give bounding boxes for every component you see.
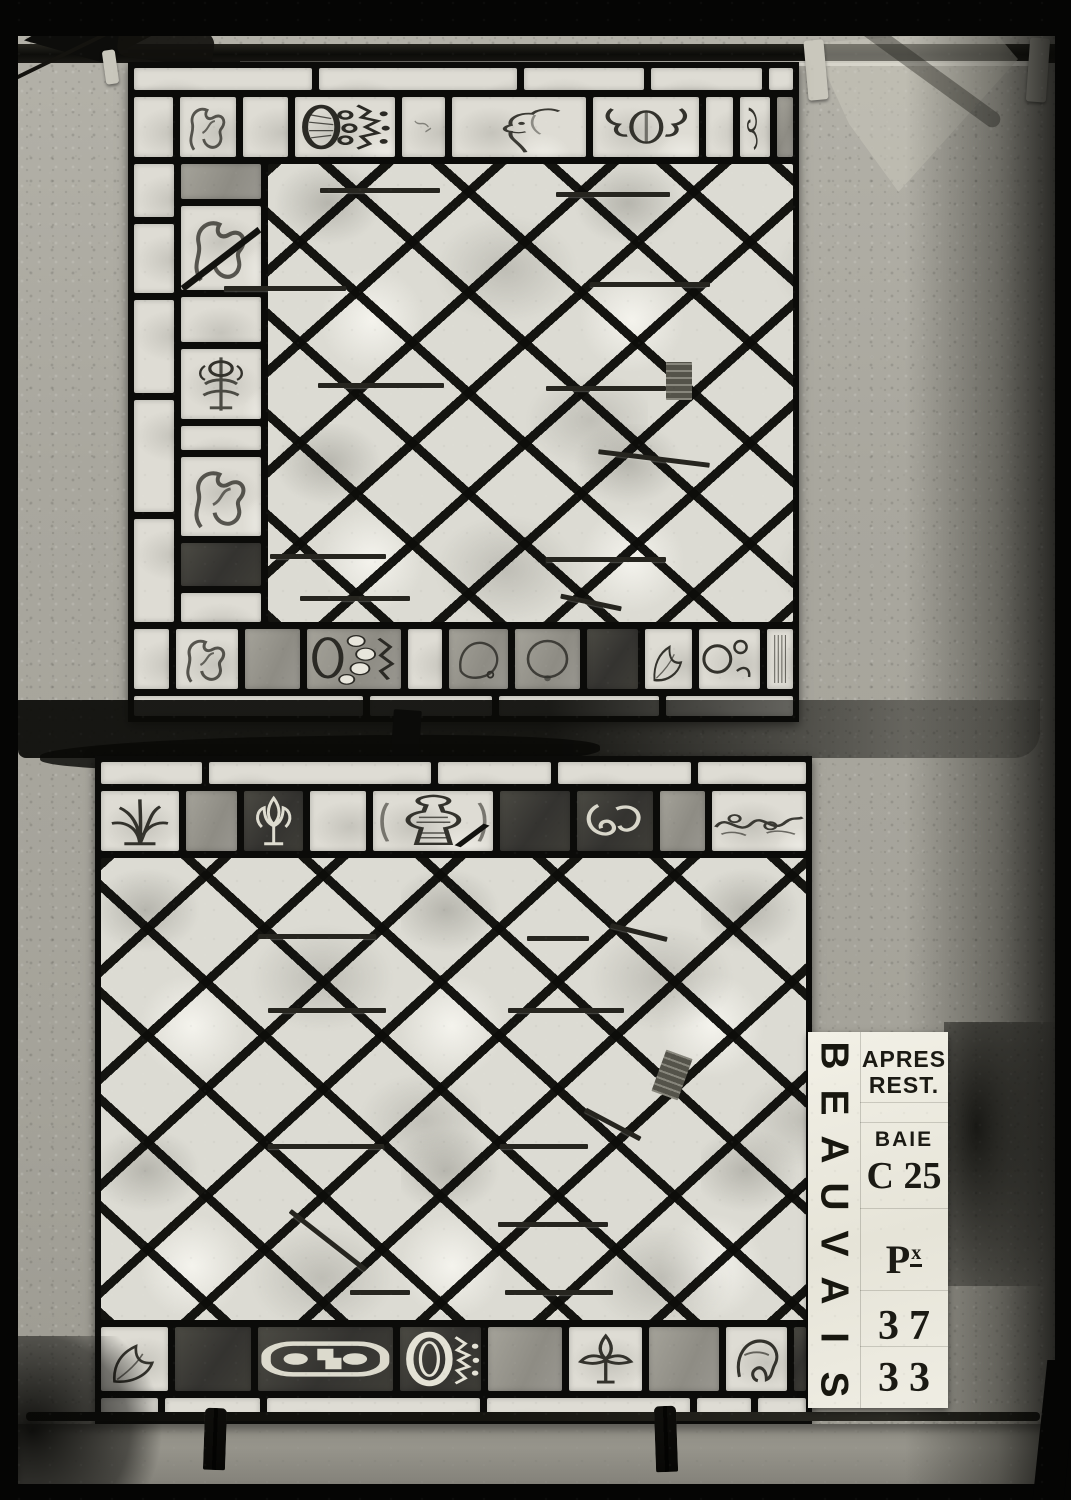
support-bar [508, 1008, 624, 1013]
panel-midsection [101, 858, 806, 1320]
bottom-ornament-border-row [101, 1327, 806, 1391]
site-letter: B [811, 1030, 858, 1082]
label-number-top: 37 [860, 1302, 948, 1350]
strip-glass-piece [181, 426, 261, 450]
dark-glass-piece [175, 1327, 251, 1391]
gray-glass-piece [649, 1327, 718, 1391]
crown-side-glass-piece [295, 97, 396, 157]
site-letter: S [811, 1359, 858, 1411]
panel-letter: P [886, 1237, 910, 1282]
support-bar [590, 282, 710, 287]
strip-glass-piece [243, 97, 288, 157]
film-border-right [1055, 0, 1071, 1500]
paper-tag [666, 362, 692, 400]
plain-sketch-glass-piece [402, 97, 445, 157]
strip-glass-piece [134, 164, 174, 217]
bottom-ornament-border-row [134, 629, 793, 689]
strip-glass-piece [101, 762, 202, 784]
ring-crown-glass-piece [400, 1327, 482, 1391]
site-letter: E [811, 1077, 858, 1129]
strip-glass-piece [134, 97, 173, 157]
strip-glass-piece [408, 629, 441, 689]
vertical-site-name: B E A U V A I S [808, 1032, 860, 1408]
top-edge-strip-row [134, 68, 793, 90]
card-shadow [944, 1022, 1060, 1286]
strip-glass-piece [134, 68, 312, 90]
support-bar [318, 383, 444, 388]
stained-glass-panel-top [128, 62, 799, 722]
site-letter: V [811, 1218, 858, 1270]
support-bar [500, 1144, 588, 1149]
site-letter: A [811, 1124, 858, 1176]
left-edge-strip-column [134, 164, 174, 622]
floral-band-glass-piece [712, 791, 806, 851]
blob-gray-glass-piece [449, 629, 508, 689]
top-ornament-border-row [134, 97, 793, 157]
scroll-leaf-glass-piece [577, 791, 653, 851]
dark-glass-piece [587, 629, 638, 689]
support-bar [224, 286, 346, 291]
panel-sup: x [910, 1242, 922, 1267]
support-bar [270, 554, 386, 559]
buckle-glass-piece [258, 1327, 393, 1391]
strip-glass-piece [134, 400, 174, 512]
corner-scroll-glass-piece [740, 97, 769, 157]
strip-glass-piece [319, 68, 516, 90]
support-bar [258, 934, 376, 939]
label-text-column: APRES REST. BAIE C 25 Px 37 33 [860, 1032, 948, 1408]
support-bar [505, 1290, 613, 1295]
label-rest: REST. [860, 1072, 948, 1099]
fleur-leaf-glass-piece [569, 1327, 642, 1391]
shadow-bottom-left [0, 1336, 180, 1494]
gray-glass-piece [777, 97, 793, 157]
site-letter: A [811, 1265, 858, 1317]
support-bar [527, 936, 589, 941]
helmet-glass-piece [726, 1327, 787, 1391]
strip-glass-piece [209, 762, 431, 784]
card-seam [860, 1122, 948, 1123]
stained-glass-panel-bottom [95, 756, 812, 1424]
baluster-glass-piece [373, 791, 494, 851]
top-ornament-border-row [101, 791, 806, 851]
face-profile-glass-piece [452, 97, 586, 157]
left-ornament-border-column [181, 164, 261, 622]
card-seam [860, 1346, 948, 1347]
site-letter: I [811, 1312, 858, 1364]
dark-glass-piece [500, 791, 570, 851]
strip-glass-piece [698, 762, 806, 784]
label-panel-code: Px [860, 1236, 948, 1283]
strip-glass-piece [310, 791, 365, 851]
gray-glass-piece [181, 164, 261, 199]
strip-glass-piece [558, 762, 691, 784]
strip-glass-piece [134, 300, 174, 393]
archival-photograph: B E A U V A I S APRES REST. BAIE C 25 Px… [0, 0, 1071, 1500]
support-bar [268, 1144, 384, 1149]
darker-glass-piece [794, 1327, 806, 1391]
label-apres: APRES [860, 1046, 948, 1073]
film-border-top [0, 0, 1071, 36]
panel-midsection [134, 164, 793, 622]
column-frag-glass-piece [767, 629, 793, 689]
card-seam [860, 1290, 948, 1291]
site-letter: U [811, 1171, 858, 1223]
acanthus-glass-piece [180, 97, 236, 157]
dark-glass-piece [181, 543, 261, 586]
label-number-bottom: 33 [860, 1354, 948, 1402]
label-baie: BAIE [860, 1128, 948, 1152]
strip-glass-piece [134, 629, 169, 689]
gray-glass-piece [660, 791, 705, 851]
strip-glass-piece [181, 297, 261, 342]
acanthus-glass-piece [181, 457, 261, 537]
support-bar [546, 386, 666, 391]
scroll-circles-glass-piece [699, 629, 760, 689]
film-border-left [0, 0, 18, 1500]
card-seam [860, 1102, 948, 1103]
top-edge-strip-row [101, 762, 806, 784]
film-border-bottom [0, 1484, 1071, 1500]
strip-glass-piece [134, 224, 174, 293]
candelabra-glass-piece [181, 349, 261, 419]
clothespin-right [654, 1406, 678, 1473]
clothespin-left [203, 1408, 227, 1471]
support-bar [268, 1008, 386, 1013]
gray-glass-piece [245, 629, 300, 689]
gray-glass-piece [488, 1327, 561, 1391]
strip-glass-piece [181, 593, 261, 622]
support-bar [320, 188, 440, 193]
diamond-quarry-lattice [101, 858, 806, 1320]
support-bar [498, 1222, 608, 1227]
leaf-light-glass-piece [645, 629, 692, 689]
label-bay-number: C 25 [860, 1154, 948, 1198]
fleur-scroll-glass-piece [244, 791, 303, 851]
card-seam [860, 1208, 948, 1209]
strip-glass-piece [769, 68, 793, 90]
support-bar [556, 192, 670, 197]
strip-glass-piece [524, 68, 644, 90]
acanthus-glass-piece [176, 629, 237, 689]
round-gray-glass-piece [515, 629, 580, 689]
strip-glass-piece [438, 762, 552, 784]
support-bar [546, 557, 666, 562]
support-bar [350, 1290, 410, 1295]
strip-glass-piece [651, 68, 762, 90]
palmette-glass-piece [101, 791, 179, 851]
baluster-scroll-glass-piece [593, 97, 700, 157]
crown-side2-glass-piece [307, 629, 402, 689]
acanthus-diag-glass-piece [181, 206, 261, 290]
strip-glass-piece [706, 97, 733, 157]
label-card: B E A U V A I S APRES REST. BAIE C 25 Px… [808, 1032, 948, 1408]
gray-glass-piece [186, 791, 237, 851]
support-bar [300, 596, 410, 601]
strip-glass-piece [134, 519, 174, 622]
